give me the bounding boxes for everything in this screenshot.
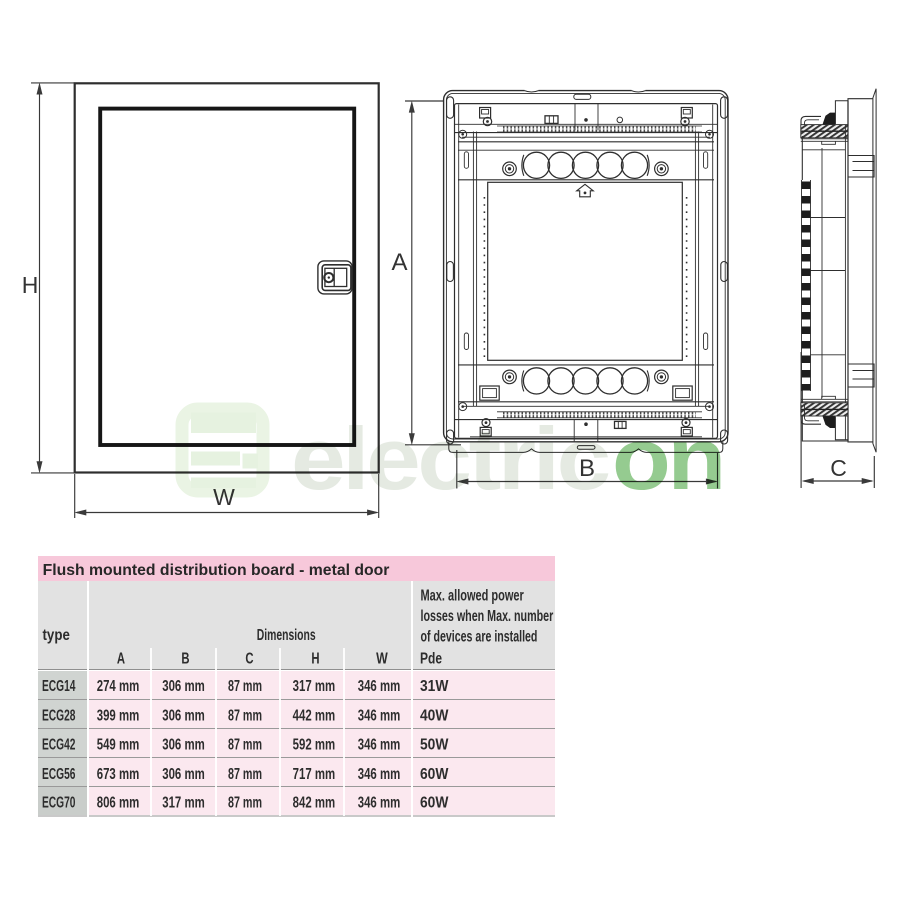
svg-text:Max. allowed power: Max. allowed power <box>421 587 525 604</box>
svg-text:842 mm: 842 mm <box>293 794 336 811</box>
svg-text:Flush mounted distribution boa: Flush mounted distribution board - metal… <box>43 562 390 579</box>
svg-text:306 mm: 306 mm <box>162 707 205 724</box>
svg-text:ECG42: ECG42 <box>42 735 75 753</box>
svg-text:ECG70: ECG70 <box>42 794 75 812</box>
svg-text:306 mm: 306 mm <box>162 736 205 753</box>
svg-text:346 mm: 346 mm <box>358 794 401 811</box>
svg-text:87 mm: 87 mm <box>228 736 262 753</box>
svg-text:306 mm: 306 mm <box>162 678 205 695</box>
svg-text:60W: 60W <box>420 795 448 812</box>
svg-text:A: A <box>117 650 125 667</box>
svg-text:442 mm: 442 mm <box>293 707 336 724</box>
svg-text:399 mm: 399 mm <box>97 707 140 724</box>
svg-text:H: H <box>311 650 319 667</box>
svg-text:of devices are installed: of devices are installed <box>421 627 538 644</box>
svg-text:C: C <box>245 650 253 667</box>
svg-text:274 mm: 274 mm <box>97 678 140 695</box>
svg-text:346 mm: 346 mm <box>358 678 401 695</box>
svg-text:ECG14: ECG14 <box>42 677 76 695</box>
svg-text:losses when Max. number: losses when Max. number <box>421 607 554 624</box>
svg-text:31W: 31W <box>420 679 448 696</box>
svg-text:type: type <box>43 627 70 644</box>
svg-text:40W: 40W <box>420 708 448 725</box>
svg-text:717 mm: 717 mm <box>293 765 336 782</box>
svg-text:60W: 60W <box>420 766 448 783</box>
svg-text:346 mm: 346 mm <box>358 707 401 724</box>
svg-text:87 mm: 87 mm <box>228 677 262 694</box>
svg-text:W: W <box>376 649 388 667</box>
svg-text:87 mm: 87 mm <box>228 794 262 811</box>
svg-text:Dimensions: Dimensions <box>257 626 316 644</box>
svg-text:673 mm: 673 mm <box>97 765 140 782</box>
svg-text:87 mm: 87 mm <box>228 706 262 723</box>
svg-text:317 mm: 317 mm <box>162 794 205 811</box>
svg-text:592 mm: 592 mm <box>293 736 336 753</box>
svg-text:317 mm: 317 mm <box>293 678 336 695</box>
svg-text:87 mm: 87 mm <box>228 765 262 782</box>
svg-text:346 mm: 346 mm <box>358 736 401 753</box>
svg-text:549 mm: 549 mm <box>97 736 140 753</box>
svg-text:806 mm: 806 mm <box>97 794 140 811</box>
svg-text:B: B <box>181 650 189 667</box>
svg-text:Pde: Pde <box>420 649 442 667</box>
svg-text:ECG28: ECG28 <box>42 706 75 724</box>
svg-text:ECG56: ECG56 <box>42 765 75 783</box>
svg-text:346 mm: 346 mm <box>358 765 401 782</box>
svg-text:50W: 50W <box>420 737 448 754</box>
svg-text:306 mm: 306 mm <box>162 765 205 782</box>
